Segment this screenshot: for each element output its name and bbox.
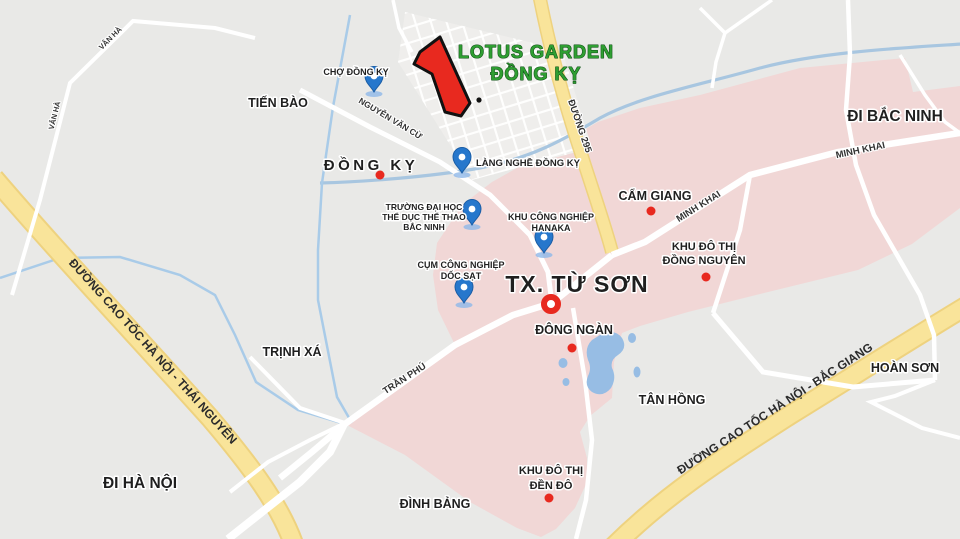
poi-university-line1: TRƯỜNG ĐẠI HỌC xyxy=(386,201,463,212)
town-dinh-bang: ĐÌNH BẢNG xyxy=(400,496,471,511)
town-tien-bao: TIẾN BÀO xyxy=(248,95,308,110)
poi-hanaka-line1: KHU CÔNG NGHIỆP xyxy=(508,211,594,222)
dot-dong-ngan xyxy=(568,344,577,353)
city-ring-marker xyxy=(544,297,558,311)
poi-cho-dong-ky: CHỢ ĐỒNG KỴ xyxy=(323,66,388,77)
town-hoan-son: HOÀN SƠN xyxy=(871,360,939,375)
poi-hanaka-line2: HANAKA xyxy=(532,223,571,233)
poi-university-line2: THỂ DỤC THỂ THAO xyxy=(382,211,466,222)
map-canvas: LOTUS GARDEN ĐỒNG KỴ ĐI BẮC NINH ĐI HÀ N… xyxy=(0,0,960,539)
urban-dong-nguyen-line1: KHU ĐÔ THỊ xyxy=(672,240,736,253)
urban-dong-nguyen-line2: ĐỒNG NGUYÊN xyxy=(662,254,745,267)
poi-doc-sat-line2: DỐC SẠT xyxy=(441,270,482,281)
town-cam-giang: CẨM GIANG xyxy=(619,188,692,203)
project-dot xyxy=(476,97,481,102)
urban-den-do-line1: KHU ĐÔ THỊ xyxy=(519,464,583,477)
dot-cam-giang xyxy=(647,207,656,216)
project-location-map: LOTUS GARDEN ĐỒNG KỴ ĐI BẮC NINH ĐI HÀ N… xyxy=(0,0,960,539)
dot-den-do xyxy=(545,494,554,503)
town-tan-hong: TÂN HỒNG xyxy=(639,392,706,407)
project-title-line2: ĐỒNG KỴ xyxy=(490,63,581,84)
urban-den-do-line2: ĐỀN ĐÔ xyxy=(530,479,573,492)
town-dong-ky: ĐỒNG KỴ xyxy=(324,156,419,174)
pin-doc-sat xyxy=(455,278,473,309)
project-title-line1: LOTUS GARDEN xyxy=(458,42,614,62)
poi-lang-nghe-dong-ky: LÀNG NGHỀ ĐỒNG KỴ xyxy=(476,157,581,169)
direction-ha-noi: ĐI HÀ NỘI xyxy=(103,474,177,492)
town-trinh-xa: TRỊNH XÁ xyxy=(262,344,321,359)
poi-university-line3: BẮC NINH xyxy=(403,222,445,232)
town-dong-ngan: ĐÔNG NGÀN xyxy=(535,322,613,337)
dot-dong-nguyen xyxy=(702,273,711,282)
pin-lang-nghe-dong-ky xyxy=(453,148,471,179)
direction-bac-ninh: ĐI BẮC NINH xyxy=(847,107,943,125)
poi-doc-sat-line1: CỤM CÔNG NGHIỆP xyxy=(417,259,504,270)
city-label-tu-son: TX. TỪ SƠN xyxy=(505,270,648,297)
